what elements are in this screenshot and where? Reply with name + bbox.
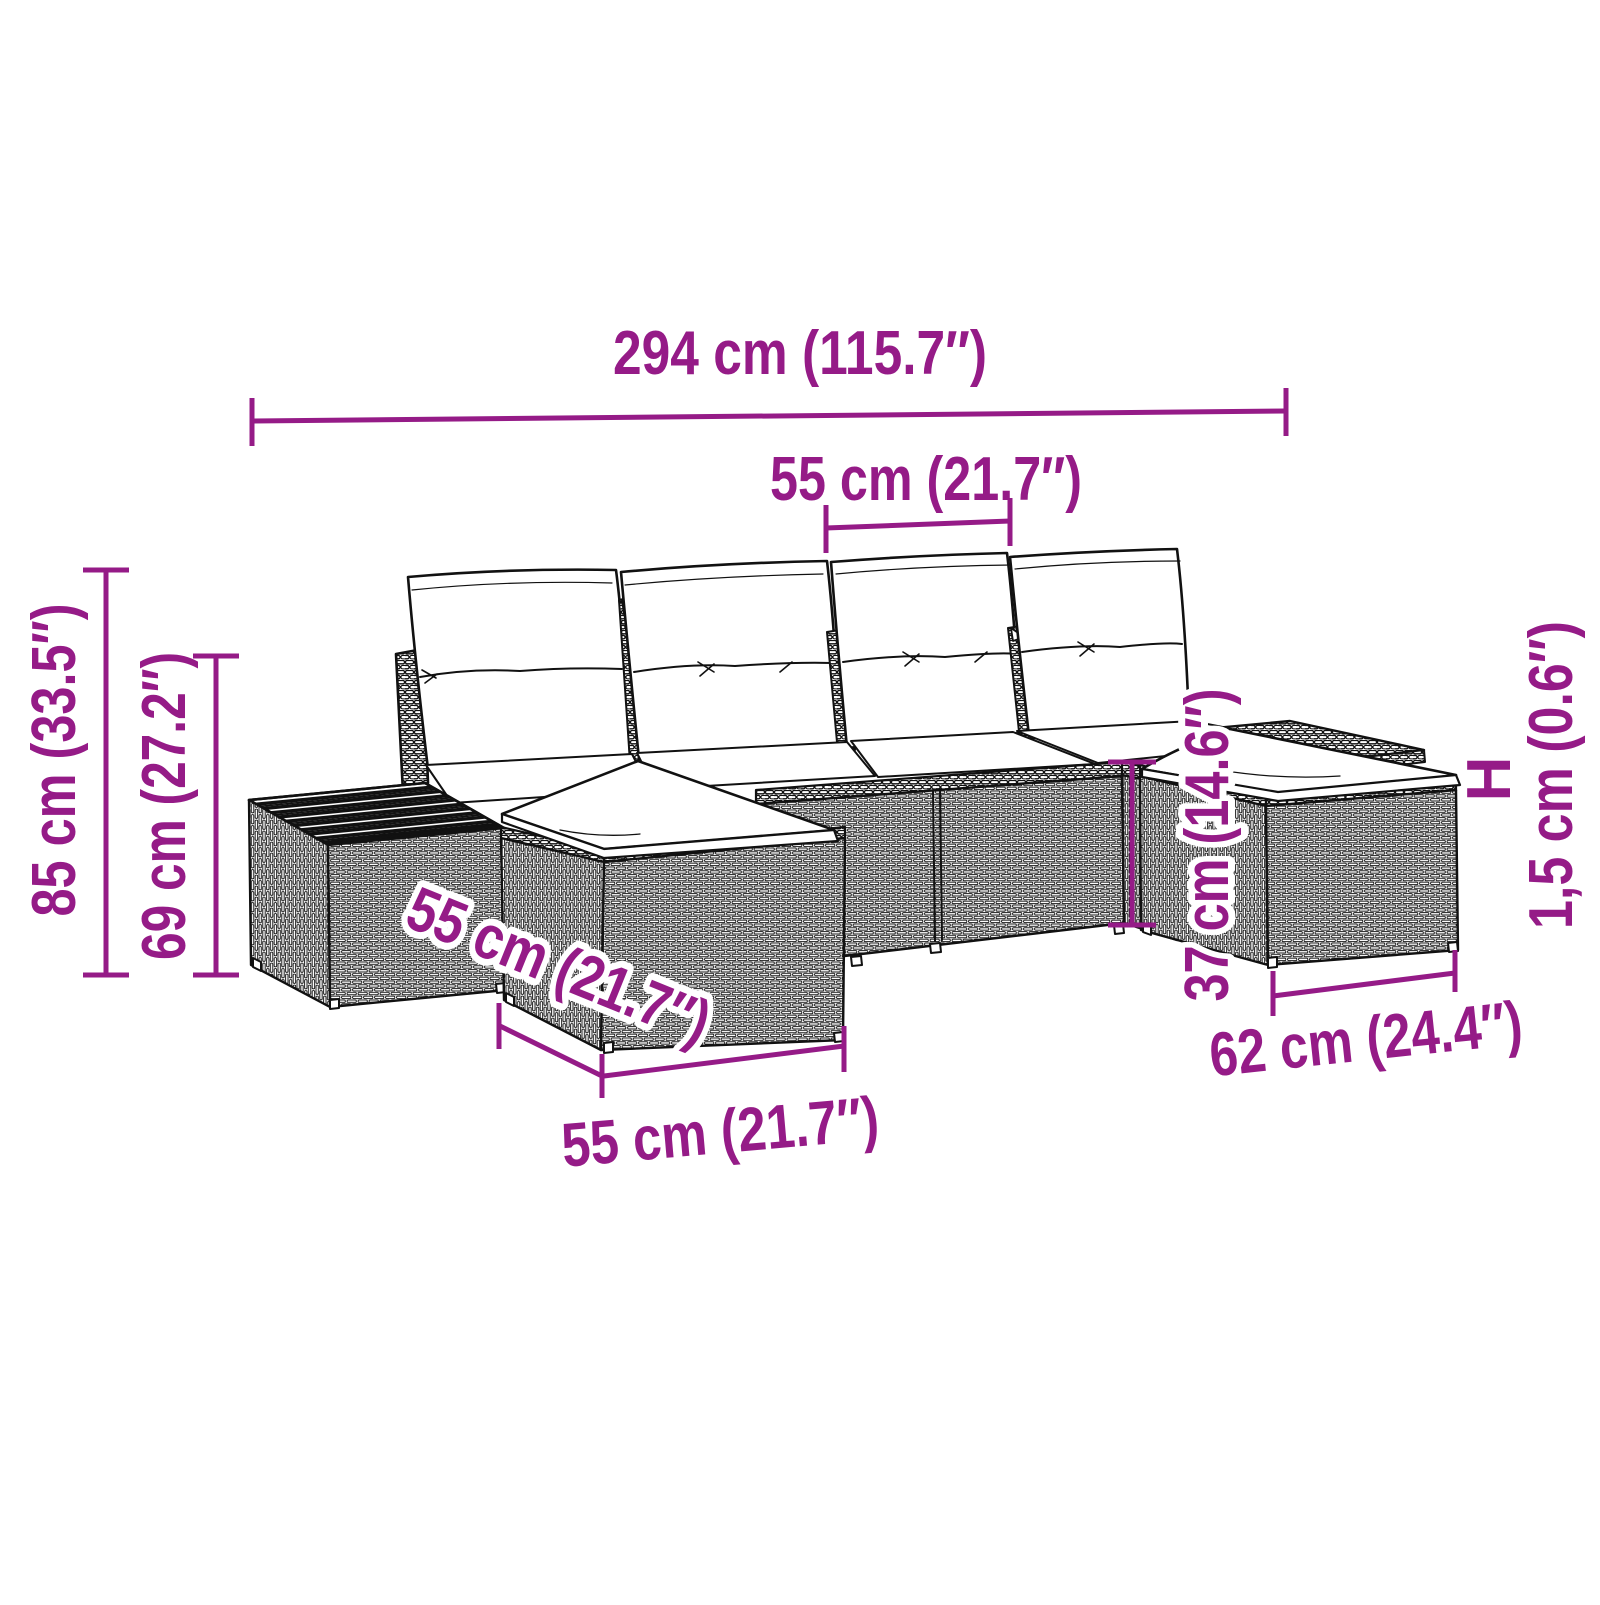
svg-text:55 cm (21.7″): 55 cm (21.7″)	[770, 445, 1082, 514]
svg-text:294 cm (115.7″): 294 cm (115.7″)	[613, 319, 987, 388]
svg-text:1,5 cm (0.6″): 1,5 cm (0.6″)	[1517, 621, 1586, 929]
svg-text:85 cm (33.5″): 85 cm (33.5″)	[20, 604, 89, 917]
svg-text:H: H	[1455, 757, 1524, 802]
svg-text:37 cm (14.6″): 37 cm (14.6″)	[1173, 689, 1242, 1002]
svg-text:69 cm (27.2″): 69 cm (27.2″)	[130, 652, 199, 960]
